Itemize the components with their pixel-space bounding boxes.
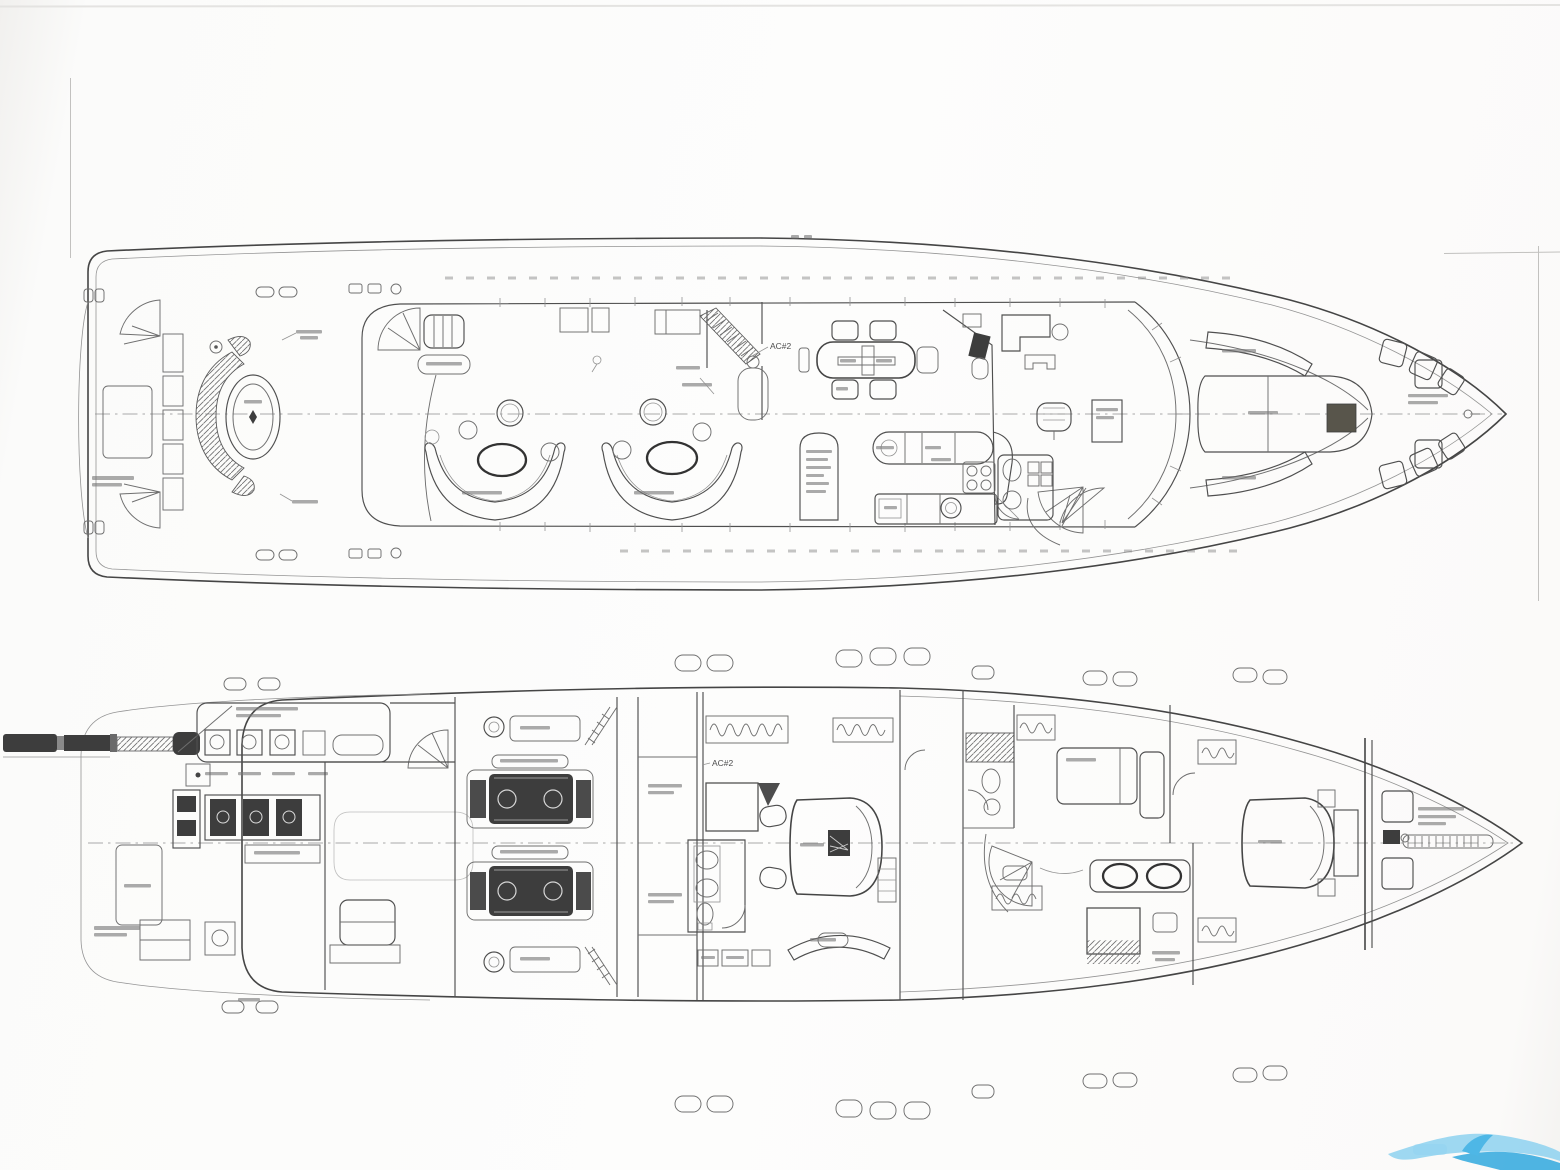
fuel-tanks: [638, 692, 703, 1000]
guest-vanity: [1090, 860, 1190, 892]
galley-stair-down: [1027, 487, 1083, 545]
engine-port: [467, 755, 593, 828]
lower-deck-plan: AC#2: [3, 648, 1522, 1119]
salon-tables: [425, 399, 711, 476]
laundry-room: [197, 703, 390, 762]
crew-mess-table: [340, 900, 395, 945]
crane-boom: [3, 706, 232, 757]
salon: AC#2: [362, 297, 1135, 532]
deck-plan-drawing: AC#2: [0, 0, 1560, 1170]
porthole-symbols: [222, 648, 1287, 1119]
galley: [800, 432, 1083, 545]
engine-room: [455, 697, 617, 997]
dining-chair: [870, 321, 896, 340]
main-deck-plan: AC#2: [79, 235, 1506, 590]
ac2-label-lower: AC#2: [712, 758, 734, 768]
swim-platform-table: [103, 386, 152, 458]
master-closets: [706, 716, 893, 743]
nav-table: [1092, 400, 1122, 442]
ac2-label-main: AC#2: [770, 341, 792, 351]
master-stateroom: [688, 690, 900, 1000]
guest-cabins: [905, 690, 1195, 1000]
scanned-yacht-deck-plans: AC#2: [0, 0, 1560, 1170]
vip-cabin: [1198, 740, 1358, 942]
windshield: [1135, 302, 1190, 527]
guest-shower: [966, 733, 1014, 762]
watermark-logo: [1388, 1134, 1560, 1170]
foyer-stairs: [676, 302, 768, 420]
engine-starboard: [467, 846, 593, 920]
aft-seating-curved: [196, 352, 244, 480]
helm-seat: [1037, 403, 1071, 431]
dining-table: [817, 342, 915, 378]
salon-spiral-stair: [378, 308, 470, 521]
master-vanity-bench: [788, 935, 890, 960]
dining-chair: [870, 380, 896, 399]
guest-bed: [1057, 748, 1137, 804]
dining-chair: [832, 321, 858, 340]
wheelhouse: [995, 302, 1190, 527]
main-deck-hull: [79, 235, 1506, 590]
foredeck-hatch: [1327, 404, 1356, 432]
salon-window-mullions: [500, 297, 1105, 532]
wheelhouse-settee: [1002, 315, 1050, 351]
salon-sofas: [425, 443, 742, 520]
mid-stair: [984, 834, 1083, 912]
